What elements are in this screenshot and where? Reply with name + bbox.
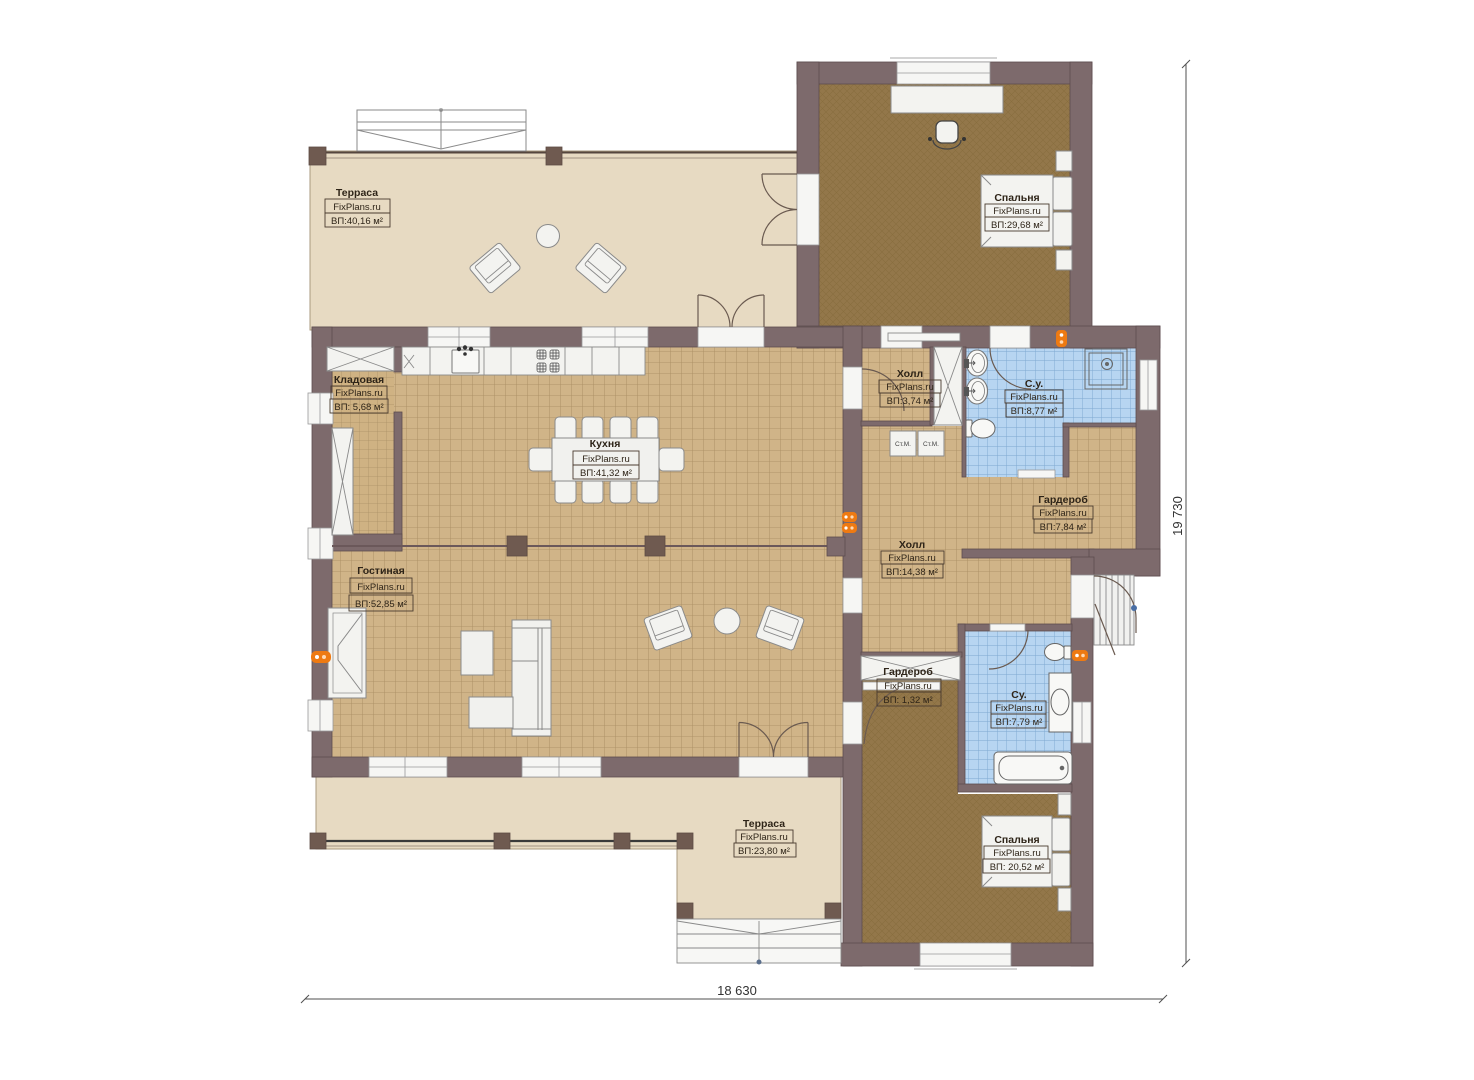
svg-text:ВП:3,74 м²: ВП:3,74 м² xyxy=(887,396,934,407)
svg-text:ВП:8,77 м²: ВП:8,77 м² xyxy=(1011,406,1058,417)
svg-text:Кладовая: Кладовая xyxy=(334,374,384,386)
svg-text:ВП:52,85 м²: ВП:52,85 м² xyxy=(355,599,407,610)
svg-text:ВП:7,79 м²: ВП:7,79 м² xyxy=(996,717,1043,728)
svg-text:FixPlans.ru: FixPlans.ru xyxy=(582,454,630,465)
svg-text:Холл: Холл xyxy=(897,368,923,380)
svg-text:Гостиная: Гостиная xyxy=(357,565,404,577)
svg-text:ВП: 1,32 м²: ВП: 1,32 м² xyxy=(883,695,932,706)
svg-text:FixPlans.ru: FixPlans.ru xyxy=(1010,392,1058,403)
svg-text:ВП:29,68 м²: ВП:29,68 м² xyxy=(991,220,1043,231)
svg-text:ВП: 5,68 м²: ВП: 5,68 м² xyxy=(334,402,383,413)
svg-text:Терраса: Терраса xyxy=(336,187,378,199)
svg-text:Су.: Су. xyxy=(1011,689,1026,701)
svg-text:ВП:23,80 м²: ВП:23,80 м² xyxy=(738,846,790,857)
svg-text:ВП: 20,52 м²: ВП: 20,52 м² xyxy=(990,862,1045,873)
svg-text:FixPlans.ru: FixPlans.ru xyxy=(888,553,936,564)
svg-text:С.у.: С.у. xyxy=(1025,378,1043,390)
svg-text:FixPlans.ru: FixPlans.ru xyxy=(740,832,788,843)
svg-text:ВП:40,16 м²: ВП:40,16 м² xyxy=(331,216,383,227)
svg-text:Ст.М.: Ст.М. xyxy=(895,441,911,448)
svg-text:FixPlans.ru: FixPlans.ru xyxy=(1039,508,1087,519)
svg-text:Ст.М.: Ст.М. xyxy=(923,441,939,448)
svg-text:FixPlans.ru: FixPlans.ru xyxy=(333,202,381,213)
svg-text:Спальня: Спальня xyxy=(994,192,1039,204)
svg-text:ВП:14,38 м²: ВП:14,38 м² xyxy=(886,567,938,578)
svg-text:18 630: 18 630 xyxy=(717,983,757,998)
svg-text:Терраса: Терраса xyxy=(743,818,785,830)
svg-text:FixPlans.ru: FixPlans.ru xyxy=(995,703,1043,714)
svg-text:FixPlans.ru: FixPlans.ru xyxy=(993,206,1041,217)
svg-text:FixPlans.ru: FixPlans.ru xyxy=(993,848,1041,859)
svg-text:19 730: 19 730 xyxy=(1170,496,1185,536)
svg-text:Кухня: Кухня xyxy=(590,438,621,450)
svg-text:FixPlans.ru: FixPlans.ru xyxy=(886,382,934,393)
svg-text:Гардероб: Гардероб xyxy=(1038,494,1088,506)
svg-text:FixPlans.ru: FixPlans.ru xyxy=(884,681,932,692)
svg-text:ВП:41,32 м²: ВП:41,32 м² xyxy=(580,468,632,479)
svg-text:FixPlans.ru: FixPlans.ru xyxy=(357,582,405,593)
svg-text:Гардероб: Гардероб xyxy=(883,666,933,678)
svg-text:ВП:7,84 м²: ВП:7,84 м² xyxy=(1040,522,1087,533)
svg-text:Холл: Холл xyxy=(899,539,925,551)
svg-text:Спальня: Спальня xyxy=(994,834,1039,846)
svg-text:FixPlans.ru: FixPlans.ru xyxy=(335,388,383,399)
